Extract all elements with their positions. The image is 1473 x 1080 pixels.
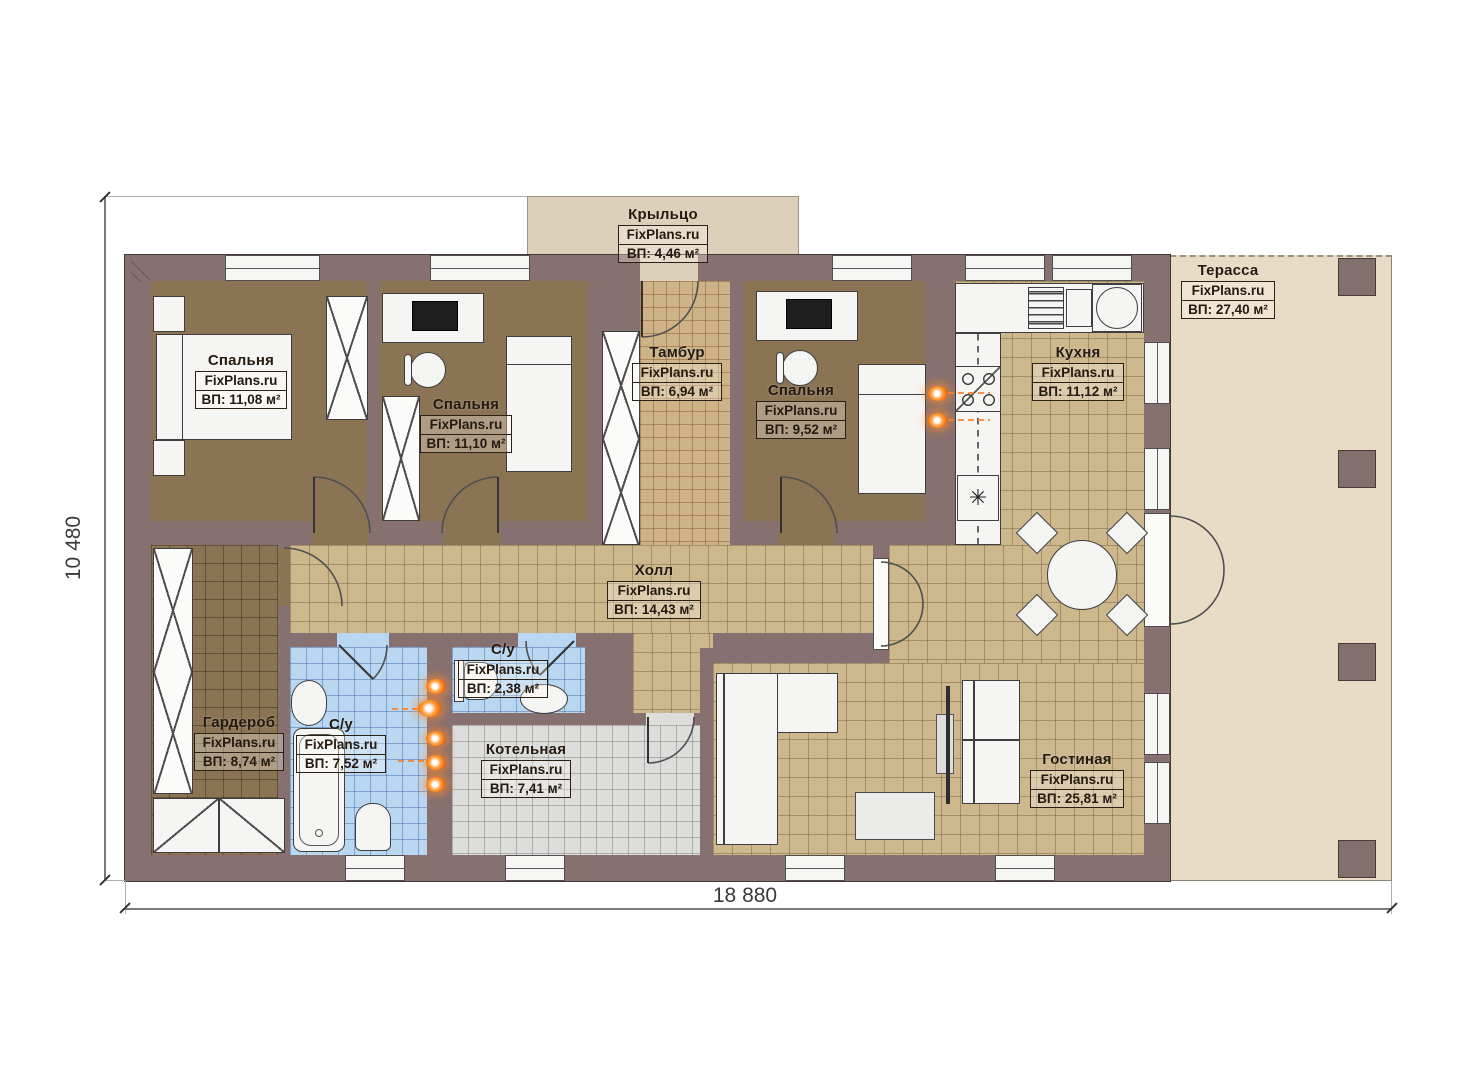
room-label-tambour: Тамбур FixPlans.ru ВП: 6,94 м²	[627, 344, 727, 401]
window	[505, 855, 565, 881]
window	[430, 255, 530, 281]
room-info-box: FixPlans.ru ВП: 11,08 м²	[195, 371, 288, 409]
sofa-cushion-line	[723, 674, 725, 844]
room-info-box: FixPlans.ru ВП: 7,41 м²	[481, 760, 571, 798]
heat-marker-icon	[928, 413, 948, 428]
tv-stand	[936, 714, 954, 774]
door-opening-boiler	[646, 713, 694, 725]
heat-marker-icon	[426, 679, 446, 694]
chair-back	[776, 352, 784, 384]
dishwasher-icon	[1028, 287, 1064, 329]
brand-label: FixPlans.ru	[459, 661, 547, 680]
cabinet-divider	[973, 681, 975, 803]
dimension-width-label: 18 880	[660, 884, 830, 908]
double-door-hall	[873, 558, 889, 650]
terrace-floor	[1170, 255, 1392, 881]
area-label: ВП: 25,81 м²	[1031, 790, 1123, 808]
heat-marker-icon	[418, 700, 442, 717]
sofa	[716, 673, 778, 845]
window	[345, 855, 405, 881]
terrace-post	[1338, 840, 1376, 878]
extension-line	[104, 880, 125, 881]
window	[1144, 342, 1170, 404]
coffee-table	[855, 792, 935, 840]
room-info-box: FixPlans.ru ВП: 11,10 м²	[420, 415, 513, 453]
room-label-boiler: Котельная FixPlans.ru ВП: 7,41 м²	[470, 741, 582, 798]
brand-label: FixPlans.ru	[1031, 771, 1123, 790]
window	[1052, 255, 1132, 281]
terrace-post	[1338, 450, 1376, 488]
room-name: Спальня	[185, 352, 297, 369]
window	[225, 255, 320, 281]
cabinet	[962, 680, 1020, 804]
area-label: ВП: 14,43 м²	[608, 601, 700, 619]
room-floor-tambour	[640, 281, 730, 545]
room-name: Тамбур	[627, 344, 727, 361]
brand-label: FixPlans.ru	[757, 402, 845, 421]
fridge-icon: ✳	[957, 475, 999, 521]
tv-icon	[946, 686, 950, 804]
brand-label: FixPlans.ru	[619, 226, 707, 245]
area-label: ВП: 8,74 м²	[195, 753, 283, 771]
wall	[602, 281, 640, 331]
window	[995, 855, 1055, 881]
brand-label: FixPlans.ru	[196, 372, 287, 391]
door-opening-bedroom2	[444, 521, 500, 545]
dimension-line-vertical	[104, 197, 106, 881]
chair-back	[404, 354, 412, 386]
wall	[588, 281, 602, 521]
room-info-box: FixPlans.ru ВП: 8,74 м²	[194, 733, 284, 771]
room-info-box: FixPlans.ru ВП: 14,43 м²	[607, 581, 701, 619]
brand-label: FixPlans.ru	[633, 364, 721, 383]
area-label: ВП: 4,46 м²	[619, 245, 707, 263]
window	[965, 255, 1045, 281]
room-info-box: FixPlans.ru ВП: 4,46 м²	[618, 225, 708, 263]
extension-line	[104, 196, 527, 197]
wall	[700, 648, 713, 855]
room-name: Терасса	[1172, 262, 1284, 279]
area-label: ВП: 11,08 м²	[196, 391, 287, 409]
room-info-box: FixPlans.ru ВП: 6,94 м²	[632, 363, 722, 401]
wall	[730, 281, 744, 521]
room-label-bedroom2: Спальня FixPlans.ru ВП: 11,10 м²	[410, 396, 522, 453]
brand-label: FixPlans.ru	[421, 416, 512, 435]
window	[1144, 693, 1170, 755]
dining-table	[1047, 540, 1117, 610]
nightstand	[153, 440, 185, 476]
room-floor-hall	[290, 545, 873, 633]
room-info-box: FixPlans.ru ВП: 2,38 м²	[458, 660, 548, 698]
room-name: Холл	[598, 562, 710, 579]
dimension-height-label: 10 480	[62, 488, 86, 608]
wardrobe-cabinet	[326, 296, 368, 420]
door-opening-bathroom-main	[337, 633, 389, 647]
area-label: ВП: 9,52 м²	[757, 421, 845, 439]
room-label-wardrobe: Гардероб FixPlans.ru ВП: 8,74 м²	[183, 714, 295, 771]
area-label: ВП: 6,94 м²	[633, 383, 721, 401]
wardrobe-cabinet	[219, 798, 285, 853]
terrace-post	[1338, 258, 1376, 296]
chair	[410, 352, 446, 388]
wall	[366, 281, 380, 521]
sink-bowl-icon	[1096, 287, 1138, 329]
room-name: Кухня	[1022, 344, 1134, 361]
double-door-terrace	[1144, 513, 1170, 627]
room-label-living: Гостиная FixPlans.ru ВП: 25,81 м²	[1021, 751, 1133, 808]
room-name: Гостиная	[1021, 751, 1133, 768]
oven-icon	[1066, 289, 1092, 327]
wall	[713, 648, 889, 663]
room-name: С/у	[448, 641, 558, 658]
wardrobe-cabinet	[153, 798, 219, 853]
room-label-terrace: Терасса FixPlans.ru ВП: 27,40 м²	[1172, 262, 1284, 319]
heat-marker-icon	[426, 731, 446, 746]
brand-label: FixPlans.ru	[482, 761, 570, 780]
area-label: ВП: 11,10 м²	[421, 435, 512, 453]
window	[1144, 762, 1170, 824]
wall	[744, 521, 958, 545]
room-label-bathroom-main: С/у FixPlans.ru ВП: 7,52 м²	[287, 716, 395, 773]
bathtub-drain	[315, 829, 323, 837]
dimension-line-horizontal	[125, 908, 1392, 910]
room-name: Гардероб	[183, 714, 295, 731]
window	[832, 255, 912, 281]
terrace-post	[1338, 643, 1376, 681]
brand-label: FixPlans.ru	[1182, 282, 1274, 301]
laptop-icon	[786, 299, 832, 329]
window	[1144, 448, 1170, 510]
room-label-porch: Крыльцо FixPlans.ru ВП: 4,46 м²	[603, 206, 723, 263]
room-label-hall: Холл FixPlans.ru ВП: 14,43 м²	[598, 562, 710, 619]
door-opening-bedroom3	[779, 521, 835, 545]
heat-marker-icon	[426, 777, 446, 792]
room-name: Спальня	[745, 382, 857, 399]
brand-label: FixPlans.ru	[297, 736, 385, 755]
cabinet-divider	[963, 739, 1019, 741]
area-label: ВП: 2,38 м²	[459, 680, 547, 698]
nightstand	[153, 296, 185, 332]
laptop-icon	[412, 301, 458, 331]
window	[785, 855, 845, 881]
toilet-icon	[355, 803, 391, 851]
room-name: Котельная	[470, 741, 582, 758]
room-label-kitchen: Кухня FixPlans.ru ВП: 11,12 м²	[1022, 344, 1134, 401]
brand-label: FixPlans.ru	[1033, 364, 1124, 383]
bed	[858, 364, 926, 494]
area-label: ВП: 7,41 м²	[482, 780, 570, 798]
floor-plan-canvas: ✳	[0, 0, 1473, 1080]
room-name: С/у	[287, 716, 395, 733]
area-label: ВП: 7,52 м²	[297, 755, 385, 773]
room-name: Крыльцо	[603, 206, 723, 223]
brand-label: FixPlans.ru	[608, 582, 700, 601]
room-info-box: FixPlans.ru ВП: 7,52 м²	[296, 735, 386, 773]
area-label: ВП: 11,12 м²	[1033, 383, 1124, 401]
heat-marker-icon	[928, 386, 948, 401]
stove-icon	[955, 366, 1001, 412]
room-info-box: FixPlans.ru ВП: 11,12 м²	[1032, 363, 1125, 401]
room-info-box: FixPlans.ru ВП: 9,52 м²	[756, 401, 846, 439]
room-info-box: FixPlans.ru ВП: 27,40 м²	[1181, 281, 1275, 319]
bed-pillow	[859, 365, 925, 395]
room-label-bedroom1: Спальня FixPlans.ru ВП: 11,08 м²	[185, 352, 297, 409]
bed-pillow	[157, 335, 183, 439]
bed-pillow	[507, 337, 571, 365]
door-opening-bedroom1	[312, 521, 368, 545]
chair	[782, 350, 818, 386]
door-opening-wardrobe	[278, 548, 290, 606]
heat-marker-icon	[426, 755, 446, 770]
brand-label: FixPlans.ru	[195, 734, 283, 753]
room-label-bathroom-small: С/у FixPlans.ru ВП: 2,38 м²	[448, 641, 558, 698]
wall	[925, 281, 955, 521]
room-name: Спальня	[410, 396, 522, 413]
area-label: ВП: 27,40 м²	[1182, 301, 1274, 319]
room-label-bedroom3: Спальня FixPlans.ru ВП: 9,52 м²	[745, 382, 857, 439]
room-info-box: FixPlans.ru ВП: 25,81 м²	[1030, 770, 1124, 808]
